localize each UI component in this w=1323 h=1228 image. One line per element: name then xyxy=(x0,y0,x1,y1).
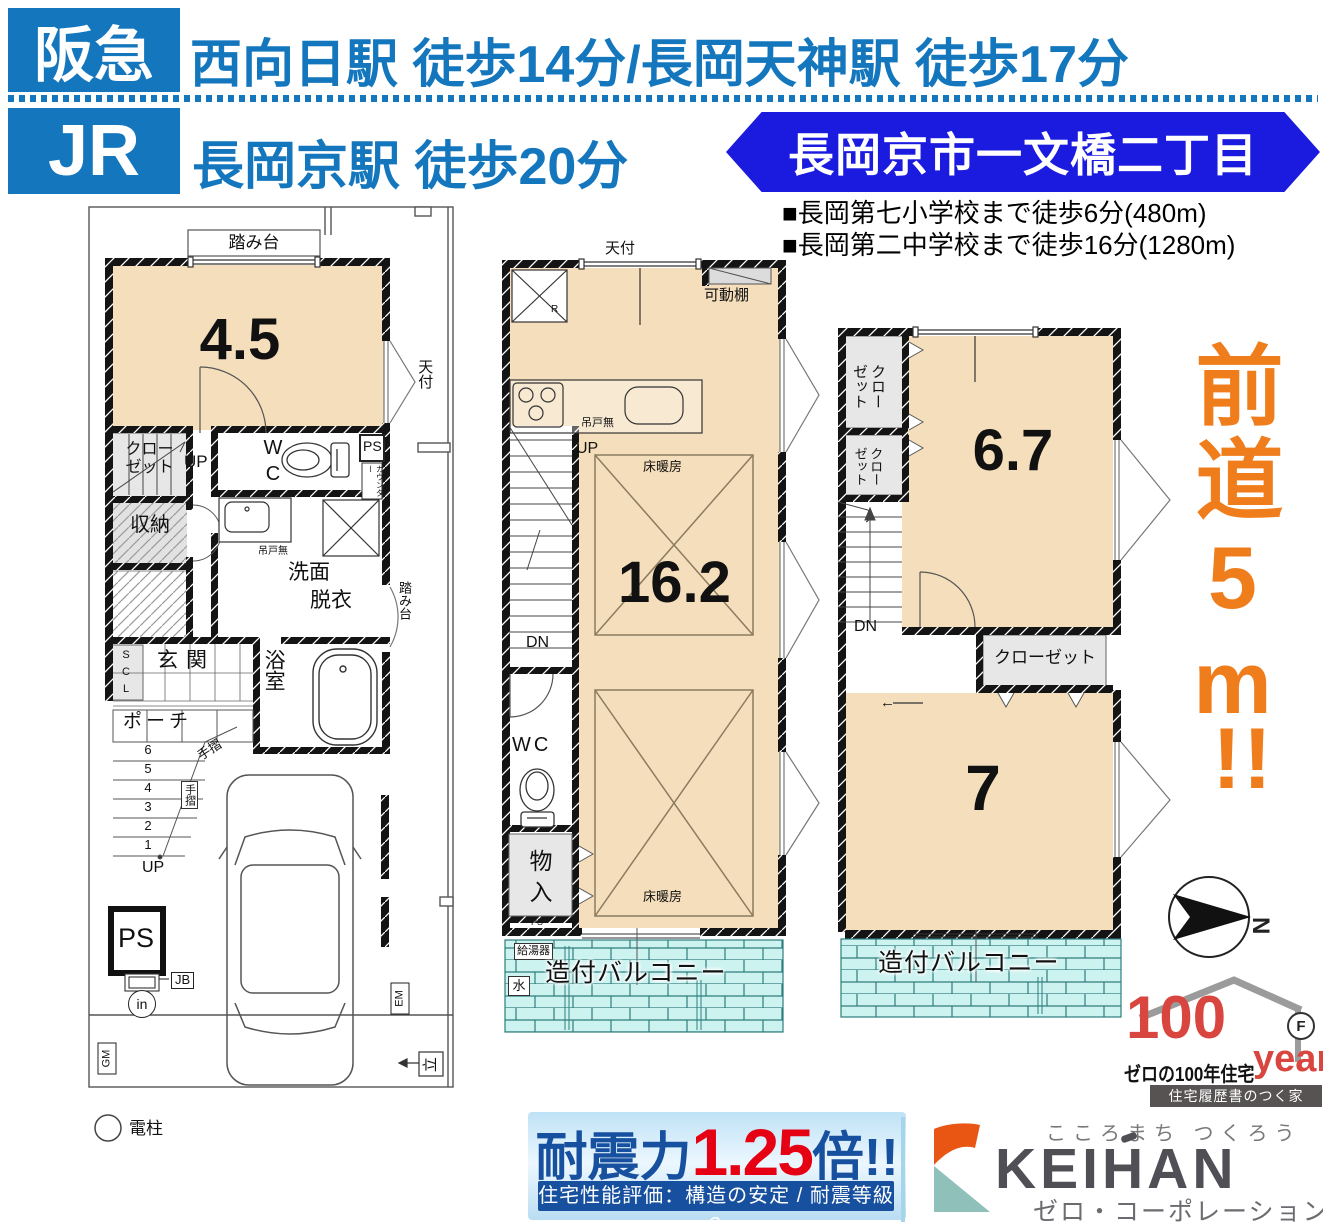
hankyu-logo: 阪急 xyxy=(8,8,180,92)
label-inlet: in xyxy=(128,990,156,1018)
toilet-2f-icon xyxy=(520,769,554,827)
jr-route: 長岡京駅 徒歩20分 xyxy=(192,124,628,199)
label-denchu: 電柱 xyxy=(129,1119,163,1139)
compass: N xyxy=(1163,872,1283,964)
label-closet3-3f: クローゼット xyxy=(985,648,1105,668)
address-banner-text: 長岡京市一文橋二丁目 xyxy=(788,119,1258,185)
label-counter-1f: カウンター xyxy=(366,465,384,498)
label-tenpuke-2f: 天付 xyxy=(605,240,635,257)
label-senmen-1: 洗面 xyxy=(288,561,330,585)
label-step-6: 6 xyxy=(141,743,155,758)
label-tate: 立 xyxy=(422,1057,439,1072)
quake-label: 耐震力 xyxy=(535,1115,691,1190)
toilet-1f-icon xyxy=(282,443,349,477)
label-closet1-3f: クロー ゼット xyxy=(850,340,886,432)
dotted-divider xyxy=(8,95,1318,102)
label-fridge-r: R xyxy=(551,304,558,316)
school-access-info: ■長岡第七小学校まで徒歩6分(480m) ■長岡第二中学校まで徒歩16分(128… xyxy=(782,197,1235,261)
label-balcony-3f: 造付バルコニー xyxy=(878,949,1060,978)
label-tsurido-2f: 吊戸無 xyxy=(581,417,614,430)
label-yukadan-2: 床暖房 xyxy=(643,890,682,905)
label-em: EM xyxy=(391,983,410,1015)
label-fumidai-top: 踏み台 xyxy=(188,233,320,253)
school-junior-high: ■長岡第二中学校まで徒歩16分(1280m) xyxy=(782,229,1235,261)
label-mono-ire: 物 入 xyxy=(522,846,560,908)
label-wc-2f: WC xyxy=(512,734,551,757)
label-up-2f: UP xyxy=(576,440,598,458)
label-kyutoki: 給湯器 xyxy=(514,943,553,960)
label-closet2-3f: クロー ゼット xyxy=(852,438,883,494)
keihan-divider xyxy=(901,1117,905,1222)
window-right-1f xyxy=(384,341,415,423)
label-balcony-2f: 造付バルコニー xyxy=(545,959,727,988)
label-step-4: 4 xyxy=(141,781,155,796)
laundry-space-icon xyxy=(323,500,379,556)
washstand-icon xyxy=(219,498,291,542)
label-scl: S C L xyxy=(115,647,137,698)
label-dn-3f: DN xyxy=(854,618,877,636)
label-closet-1f: クロー ゼット xyxy=(112,441,187,478)
label-step-5: 5 xyxy=(141,762,155,777)
label-fumidai-right: 踏み台 xyxy=(396,581,411,641)
label-room-size-7: 7 xyxy=(928,752,1038,826)
floorplan-1f: 踏み台 4.5 クロー ゼット 天付 UP W C PS カウンター 収納 吊戸… xyxy=(85,197,465,1157)
label-yukadan-1: 床暖房 xyxy=(643,460,682,475)
quake-banner: 耐震力 1.25 倍!! 住宅性能評価：構造の安定 / 耐震等級２ xyxy=(528,1112,906,1220)
denchu-circle xyxy=(95,1115,121,1141)
label-room-size-6_7: 6.7 xyxy=(948,418,1078,485)
windows-right-3f xyxy=(1115,440,1170,857)
jr-logo-text: JR xyxy=(48,110,140,192)
label-tenpuke-1f: 天付 xyxy=(416,359,433,417)
logo100-bar: 住宅履歴書のつく家 xyxy=(1150,1085,1322,1107)
label-room-size-16_2: 16.2 xyxy=(592,550,757,617)
school-elementary: ■長岡第七小学校まで徒歩6分(480m) xyxy=(782,197,1235,229)
label-genkan: 玄関 xyxy=(157,649,215,673)
floorplan-3f: クロー ゼット クロー ゼット 6.7 DN クローゼット ← 7 造付バルコニ… xyxy=(838,322,1183,1022)
road-width-bang: !! xyxy=(1198,716,1288,802)
terrace-hatch xyxy=(112,571,187,638)
logo100-years: years xyxy=(1253,1040,1323,1078)
quake-unit: 倍!! xyxy=(812,1115,899,1190)
quake-headline: 耐震力 1.25 倍!! xyxy=(528,1114,906,1190)
keihan-sub: ゼロ・コーポレーション xyxy=(1033,1192,1323,1228)
label-shuno-1f: 収納 xyxy=(115,514,185,537)
label-step-3: 3 xyxy=(141,800,155,815)
floorplan-2f: 天付 可動棚 R 吊戸無 UP 床暖房 16.2 DN WC 床暖房 物 入 P… xyxy=(497,240,822,1040)
kadodana-shelf xyxy=(709,268,771,284)
label-up2-1f: UP xyxy=(142,859,164,877)
bathtub-icon xyxy=(313,649,377,745)
label-ps-2f: PS xyxy=(531,917,543,927)
label-tsurido-1f: 吊戸無 xyxy=(258,546,288,558)
keihan-flag-orange xyxy=(934,1123,980,1165)
label-mizu: 水 xyxy=(508,976,530,996)
label-dn-2f: DN xyxy=(526,634,549,652)
label-ps-bottom: PS xyxy=(118,923,154,954)
label-room-size-4_5: 4.5 xyxy=(180,307,300,374)
windows-right-2f xyxy=(780,339,819,855)
label-jb: JB xyxy=(171,972,194,989)
logo100-tagline: ゼロの100年住宅 xyxy=(1124,1058,1254,1087)
label-porch: ポーチ xyxy=(123,711,192,733)
label-senmen-2: 脱衣 xyxy=(310,589,352,613)
label-gm: GM xyxy=(98,1043,117,1075)
label-up1-1f: UP xyxy=(184,452,208,472)
quake-value: 1.25 xyxy=(691,1114,811,1190)
label-tesuri-2: 手摺 xyxy=(181,781,198,809)
label-step-2: 2 xyxy=(141,819,155,834)
meter-box xyxy=(125,974,169,991)
label-step-1: 1 xyxy=(141,838,155,853)
hankyu-route: 西向日駅 徒歩14分/長岡天神駅 徒歩17分 xyxy=(190,22,1129,97)
logo100-number: 100 xyxy=(1126,988,1226,1048)
label-bath: 浴室 xyxy=(261,649,285,725)
hankyu-logo-text: 阪急 xyxy=(34,7,154,94)
label-kadodana: 可動棚 xyxy=(704,287,749,304)
flyer-canvas: 阪急 西向日駅 徒歩14分/長岡天神駅 徒歩17分 JR 長岡京駅 徒歩20分 … xyxy=(0,0,1323,1228)
jr-logo: JR xyxy=(8,108,180,194)
address-banner: 長岡京市一文橋二丁目 xyxy=(726,112,1320,192)
label-wc-1f: W C xyxy=(259,435,287,487)
keihan-triangle-teal xyxy=(934,1166,990,1212)
road-width-note: 前道5m xyxy=(1188,340,1276,760)
fridge-space-icon xyxy=(512,270,567,322)
label-arrow-3f: ← xyxy=(880,694,895,711)
compass-n: N xyxy=(1247,917,1274,934)
label-ps-top-1f: PS xyxy=(363,438,382,454)
hall-3f xyxy=(845,635,976,693)
car-outline xyxy=(219,775,361,1085)
logo100-f-mark: F xyxy=(1287,1012,1315,1040)
quake-sub-bar: 住宅性能評価：構造の安定 / 耐震等級２ xyxy=(538,1181,894,1211)
